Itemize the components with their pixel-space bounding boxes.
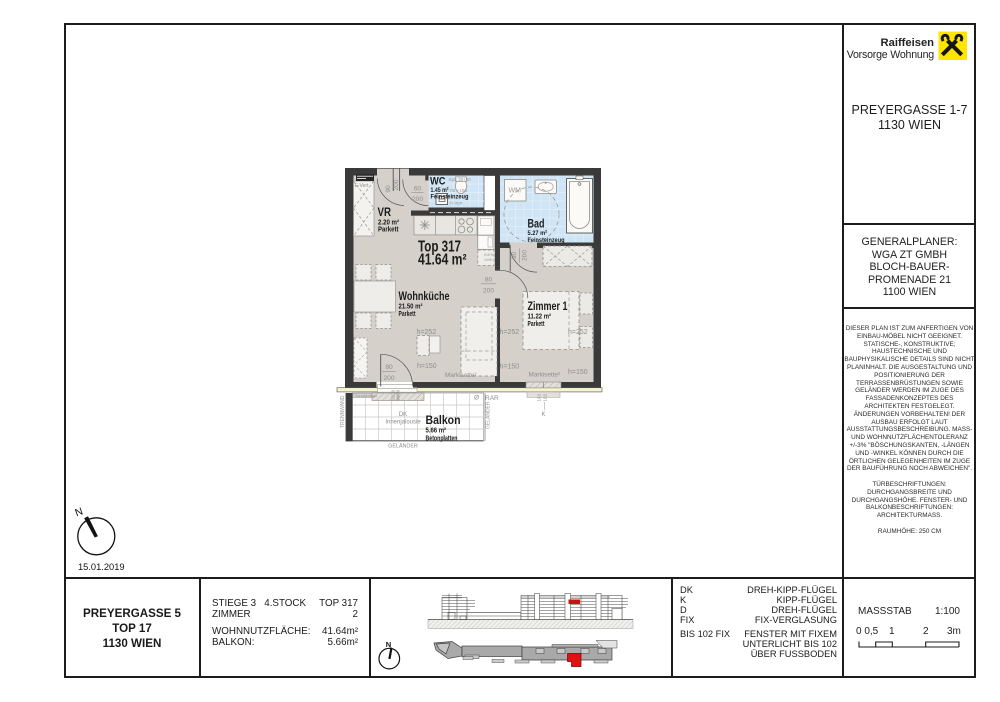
svg-text:h=252: h=252 [500,329,520,336]
svg-text:102: 102 [543,393,548,401]
svg-text:Ø: Ø [474,395,479,402]
svg-text:80: 80 [385,364,393,371]
svg-text:Parkett: Parkett [378,225,399,234]
svg-text:80: 80 [485,277,493,284]
svg-text:200: 200 [522,250,529,261]
svg-text:5.27 m²: 5.27 m² [528,230,548,237]
svg-text:Feinsteinzeug: Feinsteinzeug [528,237,565,244]
svg-text:Feinsteinzeug: Feinsteinzeug [431,194,469,201]
svg-text:h=150: h=150 [500,364,520,371]
svg-text:h=252: h=252 [417,329,437,336]
svg-text:GELÄNDER: GELÄNDER [388,443,418,450]
svg-text:N: N [386,640,391,649]
svg-text:92/29: 92/29 [396,389,401,400]
svg-text:KÜHL: KÜHL [484,253,494,257]
svg-text:TB +150: TB +150 [450,188,468,193]
svg-text:GefK: GefK [484,258,493,262]
svg-text:90: 90 [511,252,518,260]
svg-text:60: 60 [414,186,422,193]
svg-text:200: 200 [393,179,400,190]
svg-text:Markisette²: Markisette² [445,372,477,379]
svg-text:WM: WM [509,188,522,195]
svg-text:Markisette²: Markisette² [529,372,561,379]
svg-text:E-Vert: E-Vert [355,183,370,189]
svg-text:Schattenfuge: Schattenfuge [355,394,377,398]
svg-text:H-Vert: H-Vert [450,201,464,206]
svg-text:Spü 38+60: Spü 38+60 [449,177,472,182]
svg-text:Parkett: Parkett [399,309,416,318]
svg-text:N: N [73,505,84,519]
svg-text:90: 90 [385,185,392,193]
svg-text:Bad: Bad [528,217,545,231]
svg-text:Betonplatten: Betonplatten [426,434,458,443]
svg-text:WC: WC [430,176,446,188]
svg-text:41.64 m²: 41.64 m² [418,252,467,269]
svg-text:200: 200 [383,375,394,382]
svg-text:200: 200 [412,196,423,203]
svg-text:h=150: h=150 [568,369,588,376]
svg-text:Innenjalousie: Innenjalousie [385,420,421,426]
svg-text:TRENNWAND: TRENNWAND [340,395,346,428]
svg-text:GELÄNDER: GELÄNDER [484,401,491,429]
svg-text:RAR: RAR [485,395,499,402]
svg-text:K: K [542,412,546,418]
svg-text:h=252: h=252 [568,329,588,336]
svg-text:DK: DK [399,412,407,418]
svg-text:h=150: h=150 [417,363,437,370]
svg-text:102: 102 [537,393,542,401]
svg-text:200: 200 [483,287,494,294]
svg-text:Parkett: Parkett [528,319,545,328]
